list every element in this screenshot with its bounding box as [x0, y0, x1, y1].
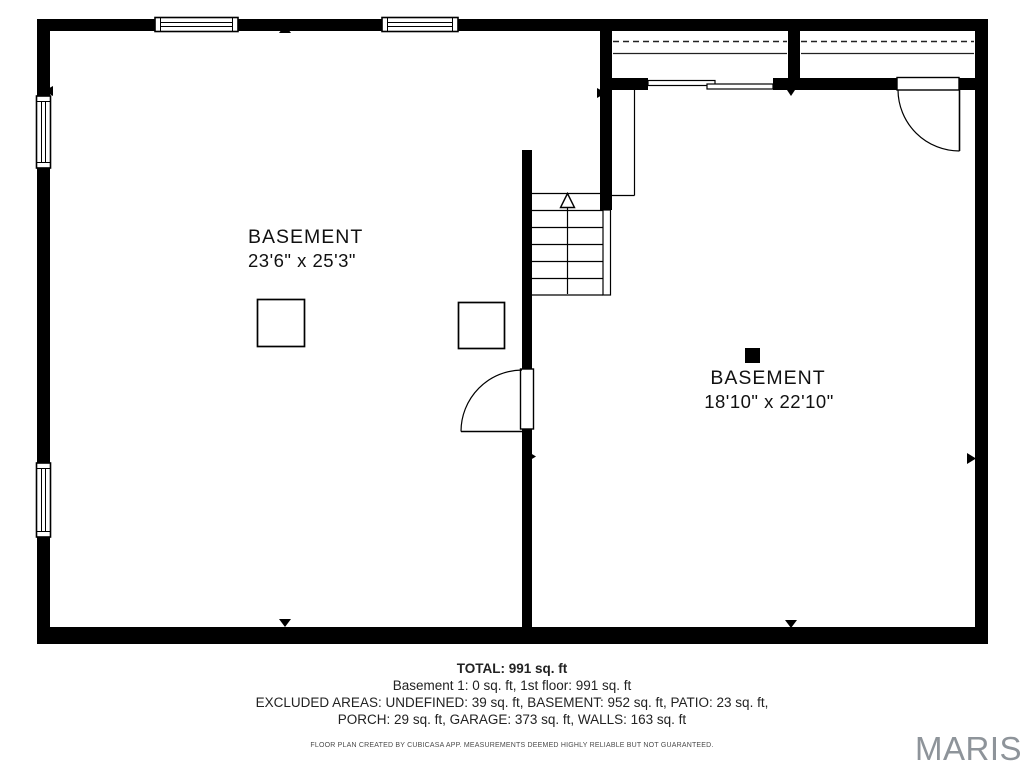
wall-interior-top-a [600, 78, 648, 90]
sliding-door-panel [707, 84, 773, 89]
maris-watermark: MARIS [915, 730, 1022, 768]
door-swing-arc [898, 90, 960, 151]
walls [37, 19, 988, 644]
room-label-right: BASEMENT [710, 367, 825, 389]
window-top-1 [155, 18, 238, 32]
door-threshold [897, 78, 959, 91]
excluded-areas-text-line2: PORCH: 29 sq. ft, GARAGE: 373 sq. ft, WA… [0, 711, 1024, 728]
window-left-2 [37, 463, 51, 537]
window-frame [155, 18, 238, 32]
wall-interior-top-c [959, 78, 975, 90]
staircase [532, 88, 635, 295]
wall-markers [44, 25, 976, 628]
window-top-2 [382, 18, 458, 32]
support-post [459, 303, 505, 349]
room-dimensions-right: 18'10" x 22'10" [704, 391, 834, 412]
sliding-door-panel [648, 81, 715, 86]
sliding-door [648, 81, 773, 90]
area-summary: TOTAL: 991 sq. ft Basement 1: 0 sq. ft, … [0, 660, 1024, 750]
wall-marker-triangle [785, 87, 797, 96]
wall-stairwell-right [600, 31, 612, 210]
wall-right [975, 19, 988, 644]
window-frame [37, 463, 51, 537]
interior-door [461, 369, 534, 432]
disclaimer-text: FLOOR PLAN CREATED BY CUBICASA APP. MEAS… [0, 741, 1024, 750]
wall-marker-triangle [967, 453, 976, 464]
door-threshold [521, 369, 534, 429]
floor-areas-text: Basement 1: 0 sq. ft, 1st floor: 991 sq.… [0, 677, 1024, 694]
room-label-left: BASEMENT [248, 226, 363, 248]
wall-porch-divider [788, 31, 800, 78]
floor-plan-canvas: BASEMENT 23'6" x 25'3" BASEMENT 18'10" x… [0, 0, 1024, 768]
support-post [258, 300, 305, 347]
door-swing-arc [461, 370, 522, 432]
column-marker [745, 348, 760, 363]
window-frame [37, 96, 51, 168]
wall-bottom [37, 627, 988, 644]
support-posts [258, 300, 505, 349]
window-frame [382, 18, 458, 32]
stair-rail [603, 210, 611, 295]
wall-marker-triangle [785, 620, 797, 628]
room-dimensions-left: 23'6" x 25'3" [248, 250, 356, 271]
wall-marker-triangle [279, 619, 291, 627]
total-area-text: TOTAL: 991 sq. ft [0, 660, 1024, 677]
excluded-areas-text-line1: EXCLUDED AREAS: UNDEFINED: 39 sq. ft, BA… [0, 694, 1024, 711]
stair-up-arrow [561, 194, 575, 208]
entry-door [897, 78, 960, 152]
window-left-1 [37, 96, 51, 168]
